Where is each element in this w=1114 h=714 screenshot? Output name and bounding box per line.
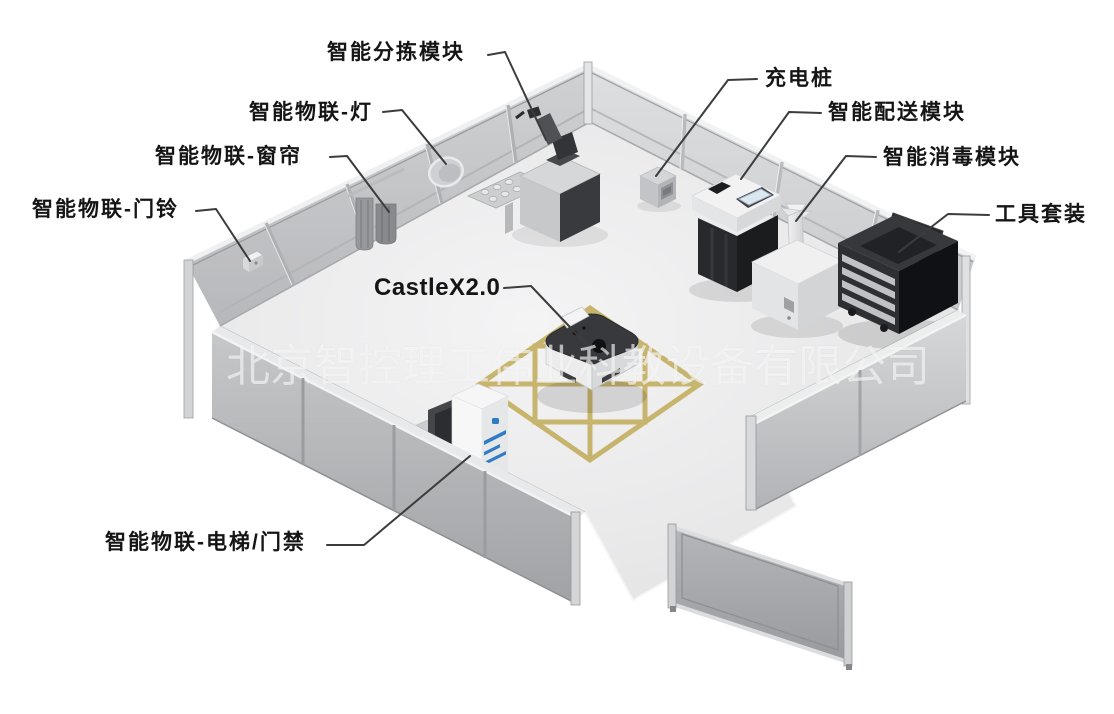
label-charging-pile: 充电桩 (765, 67, 834, 91)
label-iot-curtain: 智能物联-窗帘 (155, 145, 302, 169)
label-elevator-access: 智能物联-电梯/门禁 (105, 531, 306, 555)
label-iot-doorbell: 智能物联-门铃 (32, 198, 179, 222)
label-sorting-module: 智能分拣模块 (327, 41, 465, 65)
diagram-stage: 北京智控理工伟业科教设备有限公司 智能分拣模块 智能物联-灯 智能物联-窗帘 智… (0, 0, 1114, 714)
label-disinfection-module: 智能消毒模块 (883, 146, 1021, 170)
watermark-text: 北京智控理工伟业科教设备有限公司 (226, 330, 930, 394)
label-robot-castlex: CastleX2.0 (374, 274, 500, 302)
label-delivery-module: 智能配送模块 (828, 101, 966, 125)
label-iot-light: 智能物联-灯 (249, 101, 373, 125)
corner-post-left (184, 260, 193, 418)
door-panel (668, 524, 852, 670)
corner-post-top (584, 62, 592, 124)
label-tool-kit: 工具套装 (995, 203, 1087, 227)
